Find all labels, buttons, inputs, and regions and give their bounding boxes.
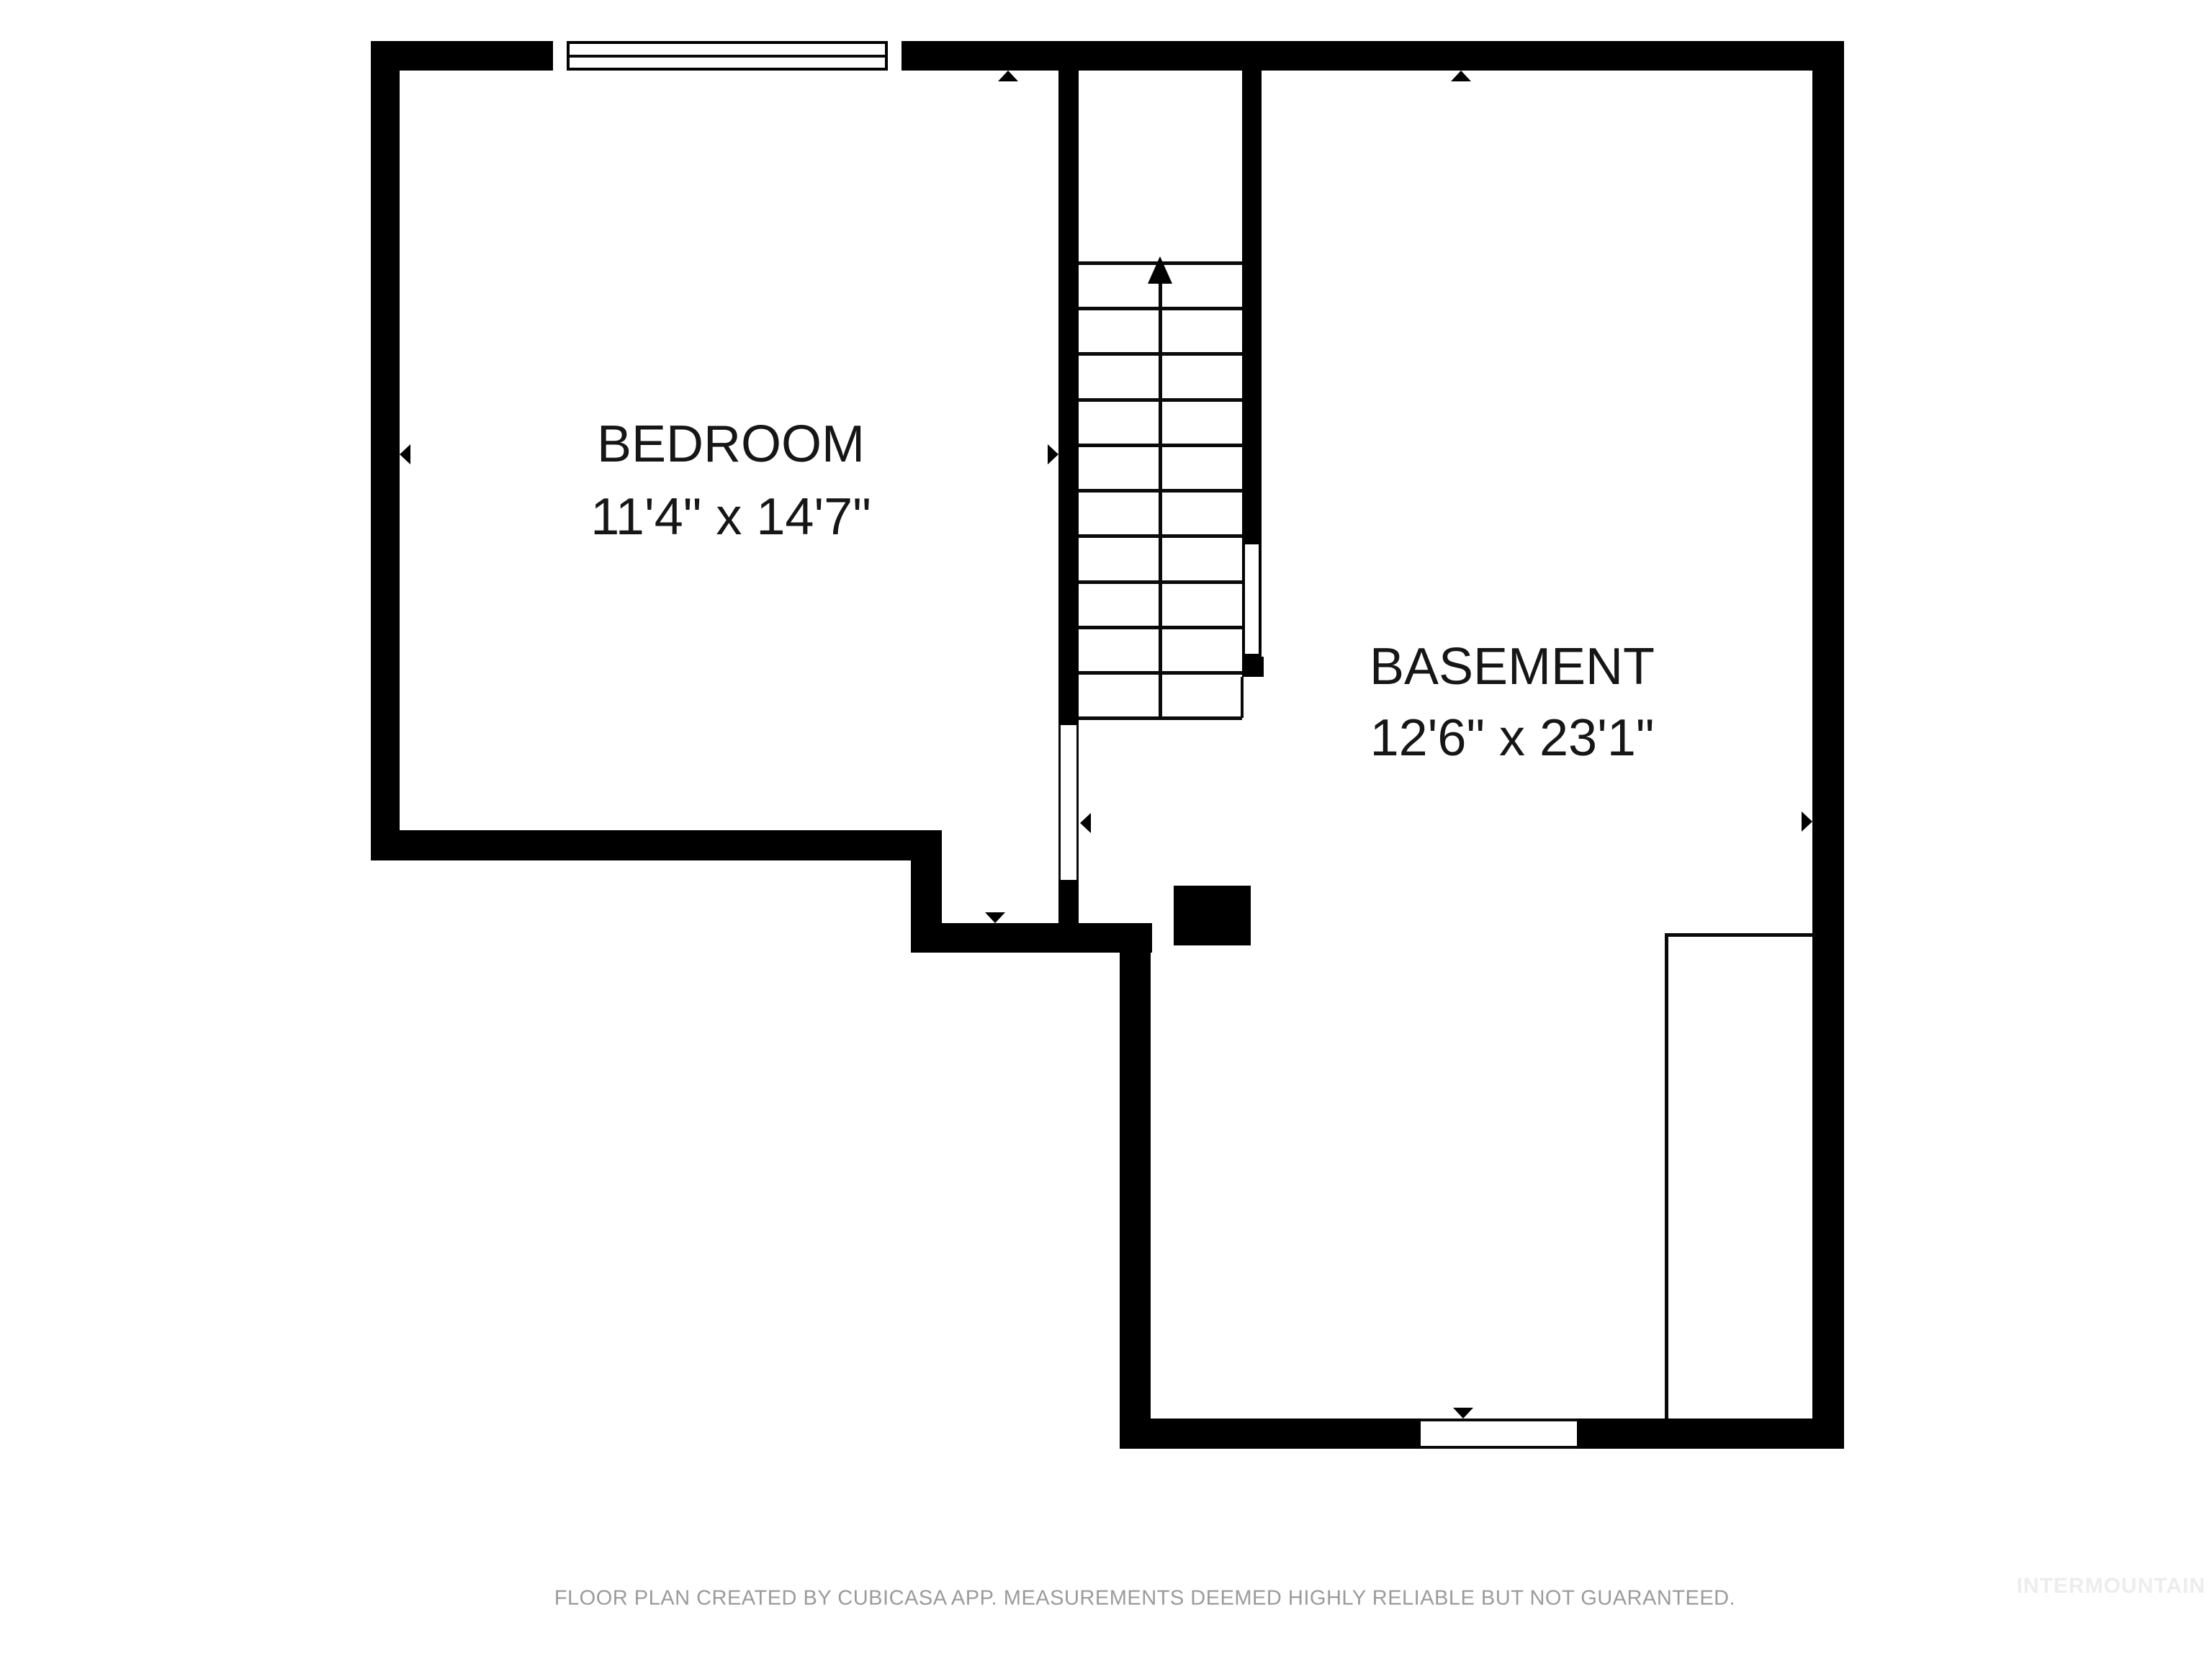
right-marker-arrow-icon	[1048, 444, 1058, 464]
disclaimer-text: FLOOR PLAN CREATED BY CUBICASA APP. MEAS…	[554, 1587, 1735, 1611]
wall	[1242, 657, 1264, 677]
wall-opening-line	[1241, 677, 1244, 718]
up-marker-arrow-icon	[998, 71, 1018, 81]
wall	[371, 41, 553, 71]
wall	[371, 71, 400, 860]
wall-opening-line	[1058, 725, 1061, 880]
window-pane-line	[570, 55, 885, 58]
wall-opening-line	[1665, 933, 1816, 937]
down-marker-arrow-icon	[1453, 1408, 1473, 1419]
wall	[902, 41, 1844, 71]
watermark-text: INTERMOUNTAIN	[2017, 1574, 2206, 1599]
furnace-block	[1174, 886, 1251, 945]
wall-opening-line	[1665, 933, 1668, 1419]
wall	[1120, 953, 1151, 1419]
stair-tread	[1079, 716, 1242, 720]
wall	[400, 830, 942, 860]
stair-up-arrow	[1148, 256, 1172, 284]
wall	[1058, 71, 1079, 725]
door	[1242, 541, 1262, 657]
left-marker-arrow-icon	[400, 444, 410, 464]
wall	[911, 923, 1152, 953]
wall-opening-line	[1421, 1446, 1577, 1449]
stair-direction-line	[1159, 281, 1162, 716]
wall	[1058, 880, 1079, 923]
wall-opening-line	[1421, 1419, 1577, 1421]
right-marker-arrow-icon	[1802, 811, 1812, 832]
up-marker-arrow-icon	[1451, 71, 1471, 81]
left-marker-arrow-icon	[1080, 813, 1091, 833]
wall	[1242, 71, 1262, 541]
bedroom-dimensions: 11'4" x 14'7"	[590, 487, 871, 547]
floorplan-canvas: BEDROOM 11'4" x 14'7" BASEMENT 12'6" x 2…	[0, 0, 2212, 1659]
wall	[1812, 71, 1844, 1449]
down-marker-arrow-icon	[985, 912, 1005, 923]
bedroom-label: BEDROOM	[597, 415, 865, 474]
wall	[1120, 1419, 1421, 1449]
basement-dimensions: 12'6" x 23'1"	[1370, 709, 1655, 768]
wall	[1577, 1419, 1844, 1449]
wall-opening-line	[1076, 725, 1079, 880]
basement-label: BASEMENT	[1370, 637, 1655, 696]
